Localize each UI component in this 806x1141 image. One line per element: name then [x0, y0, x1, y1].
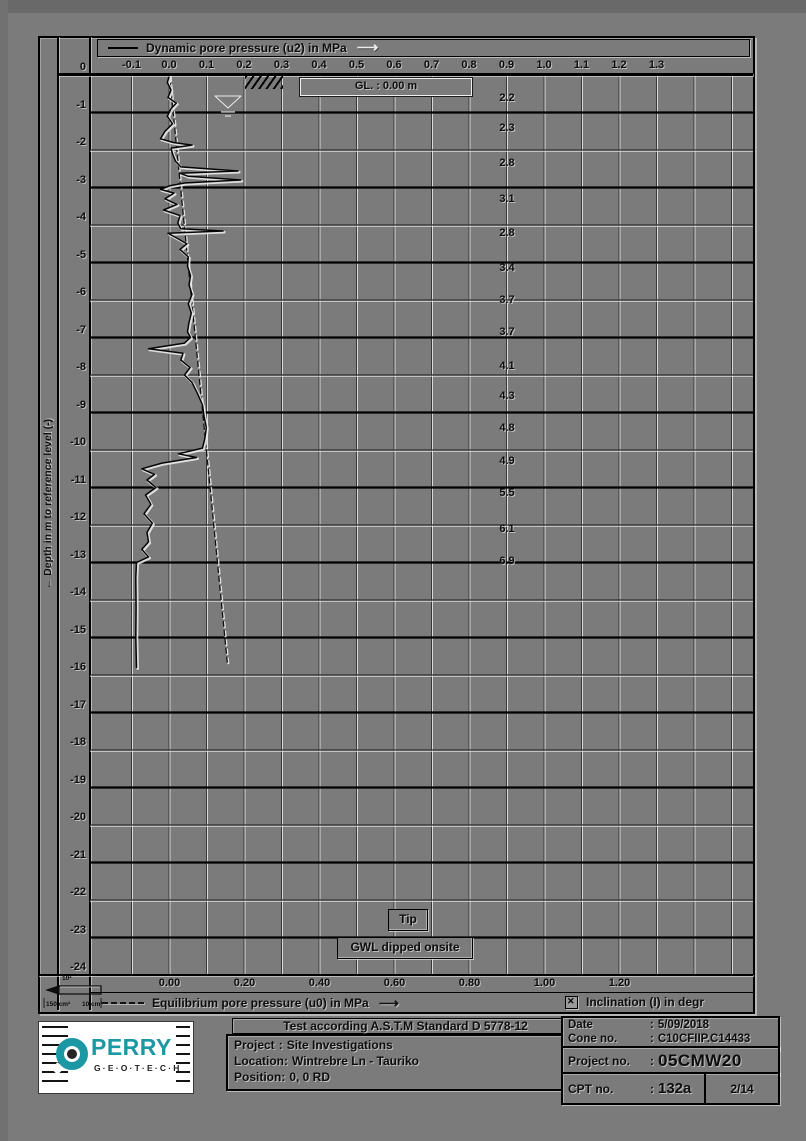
cone-label-right: 10 cm²: [82, 1001, 103, 1008]
plot-area: [90, 75, 753, 975]
logo-brand-text: PERRY: [91, 1034, 172, 1061]
cone-label-left: 150 cm²: [46, 1001, 71, 1008]
bottom-axis-tick: 1.20: [609, 977, 630, 989]
inclination-value: 4.1: [499, 360, 514, 372]
ground-surface-hatch-icon: [245, 76, 283, 89]
depth-tick: -20: [56, 811, 86, 823]
cone-label-top: 10²: [62, 975, 72, 982]
arrow-right-icon: ⟶: [357, 43, 379, 53]
inclination-value: 2.8: [499, 227, 514, 239]
inclination-value: 6.9: [499, 555, 514, 567]
depth-tick: -7: [56, 324, 86, 336]
depth-tick: -21: [56, 849, 86, 861]
top-axis-tick: -0.1: [122, 59, 141, 71]
depth-tick: -23: [56, 924, 86, 936]
inclination-value: 4.8: [499, 422, 514, 434]
checkbox-checked-icon: [565, 996, 578, 1009]
legend-top: Dynamic pore pressure (u2) in MPa ⟶: [97, 39, 750, 57]
project-value: Site Investigations: [287, 1038, 393, 1052]
logo-stripes-right: [176, 1026, 190, 1088]
standard-box: Test according A.S.T.M Standard D 5778-1…: [232, 1018, 579, 1034]
inclination-legend: Inclination (I) in degr: [565, 995, 704, 1009]
date-row: Date : 5/09/2018: [568, 1019, 778, 1033]
plot-bottom-line: [38, 974, 753, 976]
depth-tick: -5: [56, 249, 86, 261]
depth-tick: -19: [56, 774, 86, 786]
inclination-value: 5.5: [499, 487, 514, 499]
top-axis-tick: 0.4: [311, 59, 326, 71]
logo-mark-icon: [56, 1038, 88, 1070]
top-axis-tick: 0.1: [199, 59, 214, 71]
inclination-value: 2.3: [499, 122, 514, 134]
cone-row: Cone no. : C10CFIIP.C14433: [568, 1033, 778, 1047]
depth-tick: -2: [56, 136, 86, 148]
gwl-box: GWL dipped onsite: [337, 937, 473, 959]
top-axis-tick: 0.3: [274, 59, 289, 71]
depth-tick: -17: [56, 699, 86, 711]
depth-tick: -4: [56, 211, 86, 223]
depth-tick: -9: [56, 399, 86, 411]
top-axis-tick: 1.2: [611, 59, 626, 71]
bottom-axis-tick: 0.00: [159, 977, 180, 989]
left-shade: [0, 0, 8, 1141]
cpt-no-box: CPT no. : 132a 2/14: [561, 1072, 780, 1105]
depth-tick: -18: [56, 736, 86, 748]
legend-inclination-label: Inclination (I) in degr: [586, 995, 704, 1009]
inclination-value: 3.1: [499, 193, 514, 205]
depth-tick: -16: [56, 661, 86, 673]
top-axis-tick: 1.1: [574, 59, 589, 71]
inclination-value: 6.1: [499, 523, 514, 535]
inclination-value: 3.7: [499, 326, 514, 338]
bottom-axis-tick: 1.00: [534, 977, 555, 989]
bottom-axis-tick: 0.60: [384, 977, 405, 989]
ground-line: [58, 73, 753, 76]
legend-u0-label: Equilibrium pore pressure (u0) in MPa: [152, 996, 369, 1010]
bottom-axis-tick: 0.20: [234, 977, 255, 989]
top-axis-tick: 0.7: [424, 59, 439, 71]
depth-tick: -13: [56, 549, 86, 561]
bottom-axis-tick: 0.80: [459, 977, 480, 989]
top-axis-tick: 1.3: [649, 59, 664, 71]
inclination-value: 4.3: [499, 390, 514, 402]
sheet-number: 2/14: [704, 1074, 778, 1103]
depth-tick: -11: [56, 474, 86, 486]
date-value: 5/09/2018: [658, 1019, 709, 1031]
bottom-axis-tick: 0.40: [309, 977, 330, 989]
project-info-box: Project : Site Investigations Location: …: [226, 1034, 587, 1091]
depth-tick: -10: [56, 436, 86, 448]
depth-tick: -1: [56, 99, 86, 111]
position-value: 0, 0 RD: [289, 1070, 330, 1084]
depth-tick: -3: [56, 174, 86, 186]
legend-top-label: Dynamic pore pressure (u2) in MPa: [146, 41, 347, 55]
inclination-value: 3.7: [499, 294, 514, 306]
inclination-value: 4.9: [499, 455, 514, 467]
tip-box: Tip: [388, 909, 428, 931]
ground-level-box: GL. : 0.00 m: [300, 78, 472, 96]
depth-tick: 0: [56, 61, 86, 73]
top-axis-tick: 0.2: [236, 59, 251, 71]
top-axis-tick: 1.0: [536, 59, 551, 71]
solid-line-sample-icon: [108, 47, 138, 49]
cpt-no-value: 132a: [658, 1080, 691, 1097]
location-value: Wintrebre Ln - Tauriko: [292, 1054, 419, 1068]
top-axis-tick: 0.8: [461, 59, 476, 71]
depth-tick: -22: [56, 886, 86, 898]
top-axis-tick: 0.6: [386, 59, 401, 71]
project-row: Project : Site Investigations: [234, 1038, 585, 1054]
arrow-right-icon: ⟶: [379, 998, 399, 1008]
depth-tick: -12: [56, 511, 86, 523]
depth-tick: -8: [56, 361, 86, 373]
top-shade: [0, 0, 806, 13]
cone-value: C10CFIIP.C14433: [658, 1033, 750, 1045]
inclination-value: 2.8: [499, 157, 514, 169]
inclination-value: 3.4: [499, 262, 514, 274]
logo-sub-text: G·E·O·T·E·C·H: [94, 1063, 182, 1073]
inclination-value: 2.2: [499, 92, 514, 104]
top-axis-tick: 0.9: [499, 59, 514, 71]
project-no-value: 05CMW20: [658, 1051, 742, 1071]
cone-schematic-icon: 10² 150 cm² 10 cm²: [38, 968, 120, 1018]
depth-tick: -6: [56, 286, 86, 298]
company-logo: PERRY G·E·O·T·E·C·H: [38, 1021, 194, 1094]
depth-tick: -14: [56, 586, 86, 598]
top-axis-tick: 0.0: [161, 59, 176, 71]
location-row: Location: Wintrebre Ln - Tauriko: [234, 1054, 585, 1070]
top-axis-tick: 0.5: [349, 59, 364, 71]
report-page: Dynamic pore pressure (u2) in MPa ⟶ -0.1…: [0, 0, 806, 1141]
depth-tick: -15: [56, 624, 86, 636]
position-row: Position: 0, 0 RD: [234, 1070, 585, 1086]
